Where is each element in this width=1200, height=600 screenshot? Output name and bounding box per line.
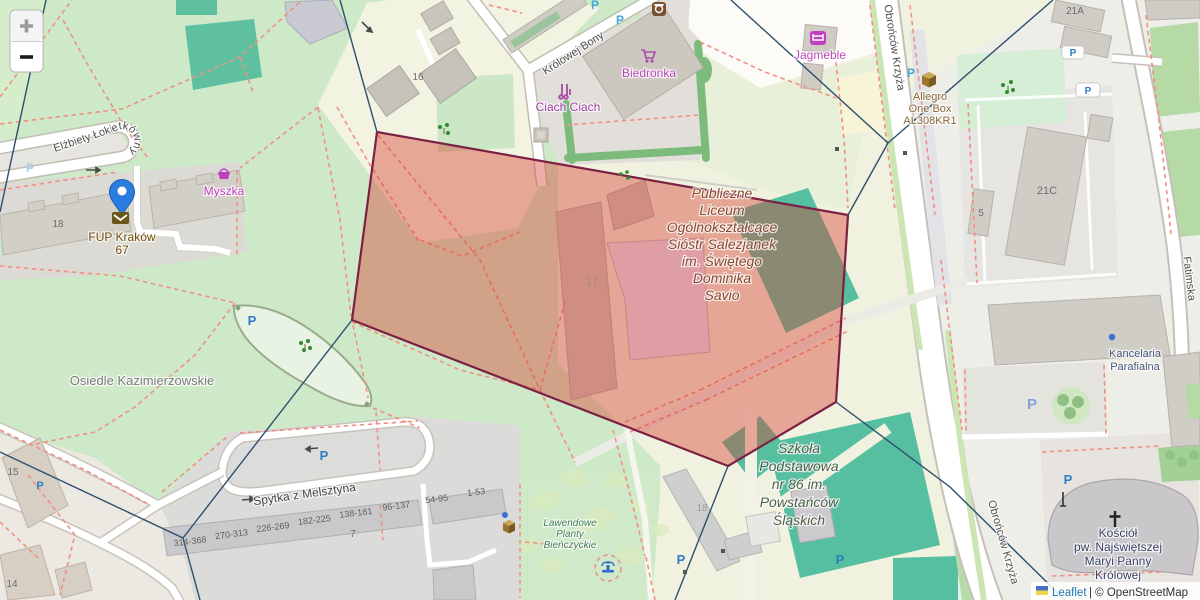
svg-text:P: P <box>591 0 599 12</box>
svg-text:Biedronka: Biedronka <box>622 66 676 80</box>
svg-text:Kościół: Kościół <box>1099 526 1138 540</box>
svg-text:Dominika: Dominika <box>693 270 752 286</box>
svg-text:P: P <box>248 313 257 328</box>
svg-text:16: 16 <box>412 72 424 83</box>
svg-text:P: P <box>320 448 329 463</box>
svg-text:5: 5 <box>978 208 984 219</box>
svg-text:Liceum: Liceum <box>699 202 744 218</box>
svg-text:Podstawowa: Podstawowa <box>759 458 839 474</box>
svg-text:21C: 21C <box>1037 185 1057 197</box>
svg-text:P: P <box>1070 48 1077 59</box>
svg-text:Ogólnokształcące: Ogólnokształcące <box>667 219 778 235</box>
svg-text:21A: 21A <box>1066 6 1084 17</box>
svg-text:Osiedle Kazimierzowskie: Osiedle Kazimierzowskie <box>70 373 215 388</box>
svg-text:Sióstr Salezjanek: Sióstr Salezjanek <box>668 236 777 252</box>
svg-text:Powstańców: Powstańców <box>760 494 839 510</box>
svg-text:pw. Najświętszej: pw. Najświętszej <box>1074 540 1162 554</box>
svg-text:im. Świętego: im. Świętego <box>682 252 762 269</box>
svg-text:Śląskich: Śląskich <box>773 511 825 528</box>
svg-text:P: P <box>26 161 34 175</box>
svg-text:14: 14 <box>6 579 18 590</box>
svg-text:Królowej: Królowej <box>1095 568 1141 582</box>
svg-text:nr 86 im.: nr 86 im. <box>772 476 826 492</box>
svg-text:Jagmeble: Jagmeble <box>794 48 846 62</box>
svg-text:P: P <box>1027 396 1037 413</box>
svg-text:Myszka: Myszka <box>204 184 245 198</box>
svg-text:Ciach Ciach: Ciach Ciach <box>536 100 601 114</box>
svg-text:Szkoła: Szkoła <box>778 440 820 456</box>
svg-text:Allegro: Allegro <box>913 91 947 103</box>
svg-text:15: 15 <box>7 467 19 478</box>
svg-text:Lawendowe: Lawendowe <box>543 518 597 529</box>
svg-text:Kancelaria: Kancelaria <box>1109 348 1162 360</box>
svg-text:Savio: Savio <box>704 287 739 303</box>
svg-text:Parafialna: Parafialna <box>1110 361 1160 373</box>
svg-text:P: P <box>677 552 686 567</box>
svg-text:P: P <box>907 66 915 80</box>
svg-text:Planty: Planty <box>556 529 585 540</box>
svg-text:Publiczne: Publiczne <box>692 185 753 201</box>
svg-text:Maryi Panny: Maryi Panny <box>1085 554 1152 568</box>
svg-text:P: P <box>1064 472 1073 487</box>
svg-text:FUP Kraków: FUP Kraków <box>88 230 155 244</box>
svg-text:| © OpenStreetMap: | © OpenStreetMap <box>1089 587 1188 599</box>
svg-text:P: P <box>36 480 43 492</box>
svg-text:Leaflet: Leaflet <box>1052 587 1087 599</box>
svg-text:7: 7 <box>350 529 356 540</box>
svg-text:18: 18 <box>696 503 708 514</box>
svg-text:P: P <box>1085 86 1092 97</box>
svg-text:AL308KR1: AL308KR1 <box>903 115 956 127</box>
svg-text:18: 18 <box>52 219 64 230</box>
svg-text:P: P <box>836 552 845 567</box>
svg-text:67: 67 <box>115 243 129 257</box>
svg-text:P: P <box>616 13 624 27</box>
svg-text:Bieńczyckie: Bieńczyckie <box>544 540 597 551</box>
svg-text:17: 17 <box>586 277 598 288</box>
svg-text:One Box: One Box <box>909 103 952 115</box>
